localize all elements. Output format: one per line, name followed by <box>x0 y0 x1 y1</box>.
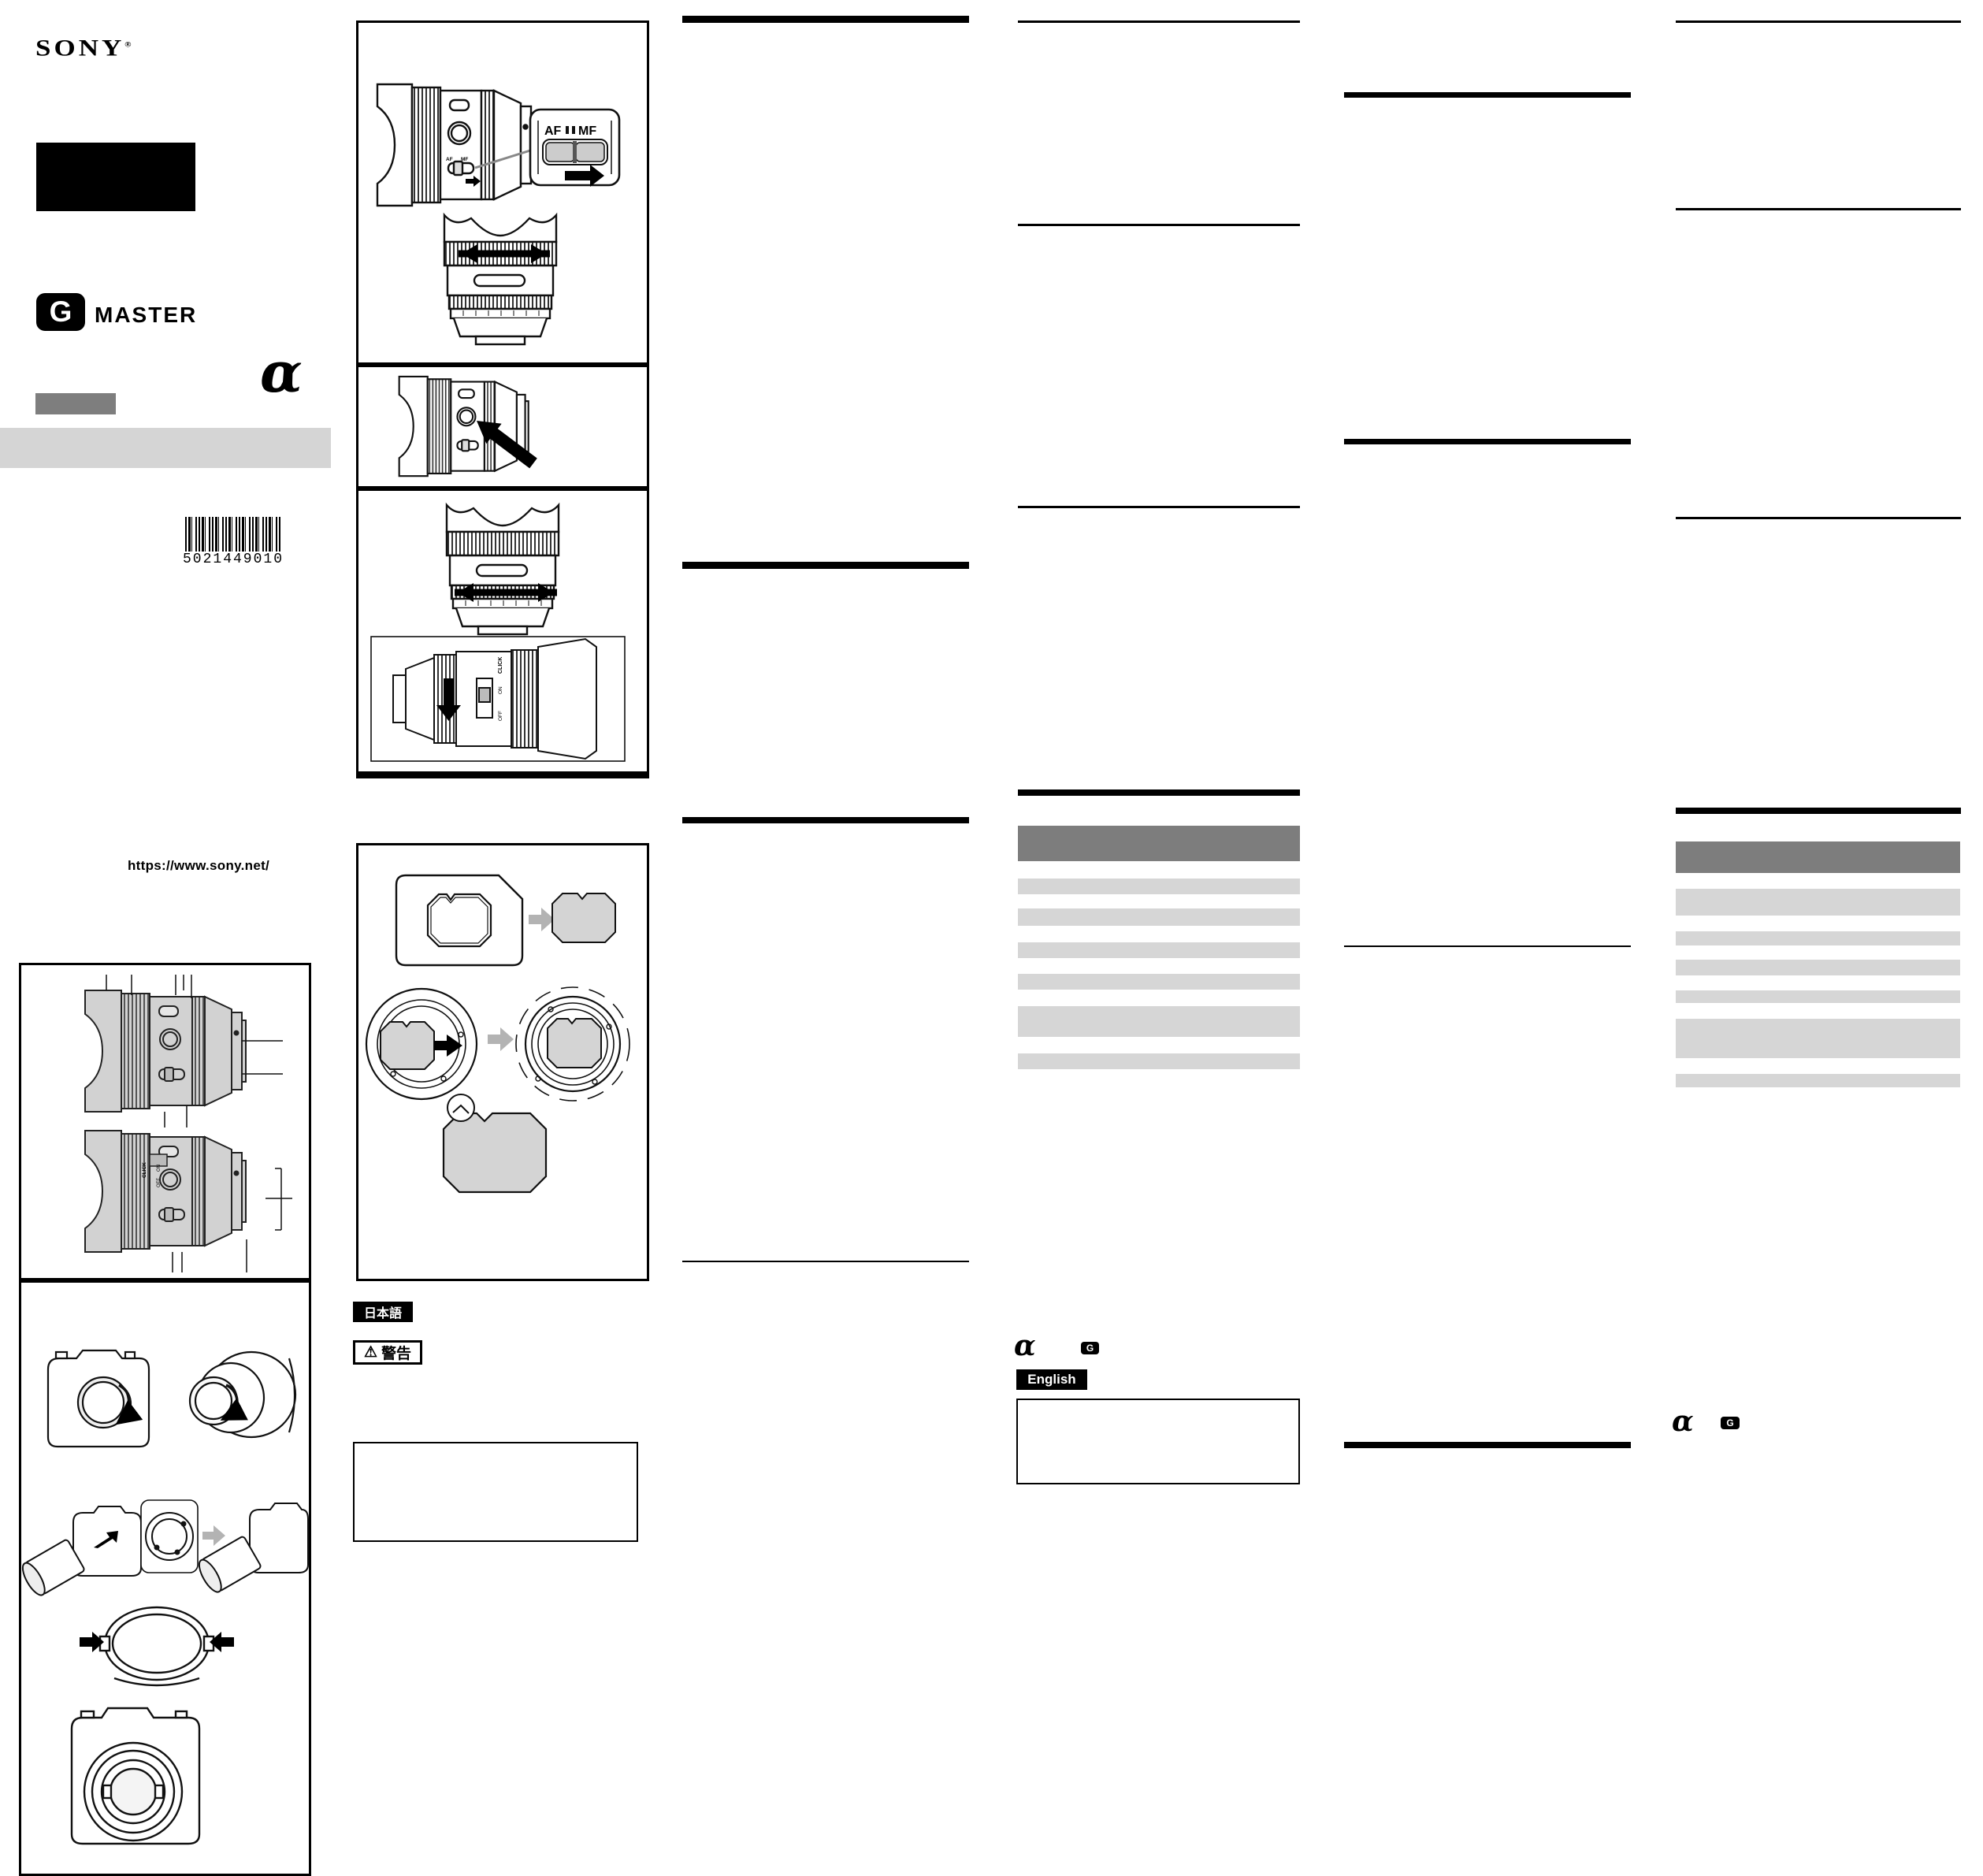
leaflet-page: SONY® G MASTER α 5021449010 https://www.… <box>0 0 1983 1876</box>
svg-text:ON: ON <box>157 1165 162 1172</box>
spec-table-header <box>1018 826 1300 861</box>
section-heading-rule <box>682 16 969 23</box>
spec-table-header <box>1676 841 1960 873</box>
rear-filter-box <box>356 843 649 1281</box>
setup-illustrations <box>21 1283 309 1874</box>
lens-parts-illustration: CLICK ON OFF <box>21 965 309 1278</box>
warning-text: 警告 <box>381 1342 411 1363</box>
aperture-ring-box: CLICK ON OFF <box>356 489 649 778</box>
g-trademark-icon: G <box>1081 1342 1099 1354</box>
redacted-title-banner <box>36 143 195 211</box>
svg-text:OFF: OFF <box>157 1178 162 1187</box>
spec-table-row <box>1018 879 1300 894</box>
alpha-logo: α <box>260 345 303 400</box>
section-divider-line <box>1018 20 1300 23</box>
aperture-ring-illustration: CLICK ON OFF <box>358 491 647 771</box>
svg-text:CLICK: CLICK <box>142 1162 147 1178</box>
section-heading-rule <box>682 562 969 569</box>
setup-instructions-box <box>19 1280 311 1876</box>
af-label: AF <box>544 124 562 138</box>
attach-lens-figure <box>21 1500 308 1599</box>
warning-heading: ⚠ 警告 <box>353 1340 422 1365</box>
section-divider-line <box>1676 20 1961 23</box>
parts-identification-box: CLICK ON OFF <box>19 963 311 1280</box>
section-divider-line <box>1676 208 1961 210</box>
filter-notch-detail-figure <box>444 1094 546 1192</box>
section-heading-rule <box>1344 92 1631 98</box>
lens-rear-cap-figure <box>190 1352 295 1437</box>
svg-text:CLICK: CLICK <box>498 657 503 674</box>
lens-side-view <box>377 84 535 206</box>
section-heading-rule <box>1018 789 1300 796</box>
registered-mark-icon: ® <box>124 41 131 49</box>
spec-table-row <box>1018 908 1300 926</box>
step-arrow-icon <box>529 908 555 931</box>
redacted-model-bar <box>35 393 116 414</box>
alpha-trademark: α <box>1672 1407 1694 1436</box>
step-arrow-icon <box>488 1027 514 1051</box>
barcode <box>185 517 281 552</box>
section-heading-rule <box>1344 1442 1631 1448</box>
section-divider-line <box>1018 224 1300 226</box>
cut-filter-shape <box>552 893 615 942</box>
section-divider-line <box>682 1261 969 1262</box>
section-divider-line <box>1344 945 1631 947</box>
warning-triangle-icon: ⚠ <box>364 1343 377 1361</box>
rear-filter-illustration <box>358 845 647 1279</box>
lens-front-view <box>444 215 556 344</box>
svg-text:OFF: OFF <box>498 711 503 721</box>
af-mf-illustration: AF MF AF MF <box>358 23 647 362</box>
focus-hold-button-box <box>356 365 649 489</box>
section-divider-line <box>1676 517 1961 519</box>
front-cap-figure <box>80 1607 234 1685</box>
filter-sheet-figure <box>396 875 615 965</box>
spec-table-row <box>1676 1019 1960 1058</box>
section-divider-line <box>1018 506 1300 508</box>
language-tag-english: English <box>1016 1369 1087 1390</box>
focus-hold-illustration <box>358 367 647 486</box>
svg-text:AF: AF <box>446 157 453 162</box>
spec-table-row <box>1018 974 1300 990</box>
svg-text:ON: ON <box>498 686 503 694</box>
lens-front-view <box>447 505 559 634</box>
spec-table-row <box>1676 960 1960 975</box>
section-heading-rule <box>1344 439 1631 444</box>
g-master-badge-icon: G <box>36 293 85 331</box>
af-mf-switch-box: AF MF AF MF <box>356 20 649 365</box>
spec-table-row <box>1676 889 1960 916</box>
spec-table-row <box>1018 1006 1300 1037</box>
mf-label: MF <box>578 124 596 138</box>
spec-table-row <box>1676 1074 1960 1087</box>
insert-filter-figure <box>366 987 629 1101</box>
alpha-trademark: α <box>1014 1332 1036 1360</box>
english-note-box <box>1016 1399 1300 1484</box>
g-trademark-icon: G <box>1721 1417 1740 1429</box>
lens-side-view-bottom <box>85 1131 246 1252</box>
af-mf-callout: AF MF <box>530 110 619 187</box>
svg-text:MF: MF <box>461 157 468 162</box>
japanese-note-box <box>353 1442 638 1542</box>
spec-table-row <box>1676 990 1960 1003</box>
sony-url: https://www.sony.net/ <box>128 858 269 874</box>
section-heading-rule <box>1676 808 1961 814</box>
sony-logo: SONY® <box>35 35 131 61</box>
section-heading-rule <box>682 817 969 823</box>
camera-with-lens-figure <box>72 1708 199 1844</box>
click-switch-inset: CLICK ON OFF <box>371 637 625 761</box>
redacted-subtitle-bar <box>0 428 331 468</box>
camera-body-cap-figure <box>48 1350 149 1447</box>
lens-side-view-top <box>85 990 246 1112</box>
language-tag-japanese: 日本語 <box>353 1302 413 1322</box>
spec-table-row <box>1018 942 1300 958</box>
spec-table-row <box>1676 931 1960 945</box>
barcode-digits: 5021449010 <box>180 552 287 567</box>
spec-table-row <box>1018 1053 1300 1069</box>
g-master-wordmark: MASTER <box>95 303 197 328</box>
